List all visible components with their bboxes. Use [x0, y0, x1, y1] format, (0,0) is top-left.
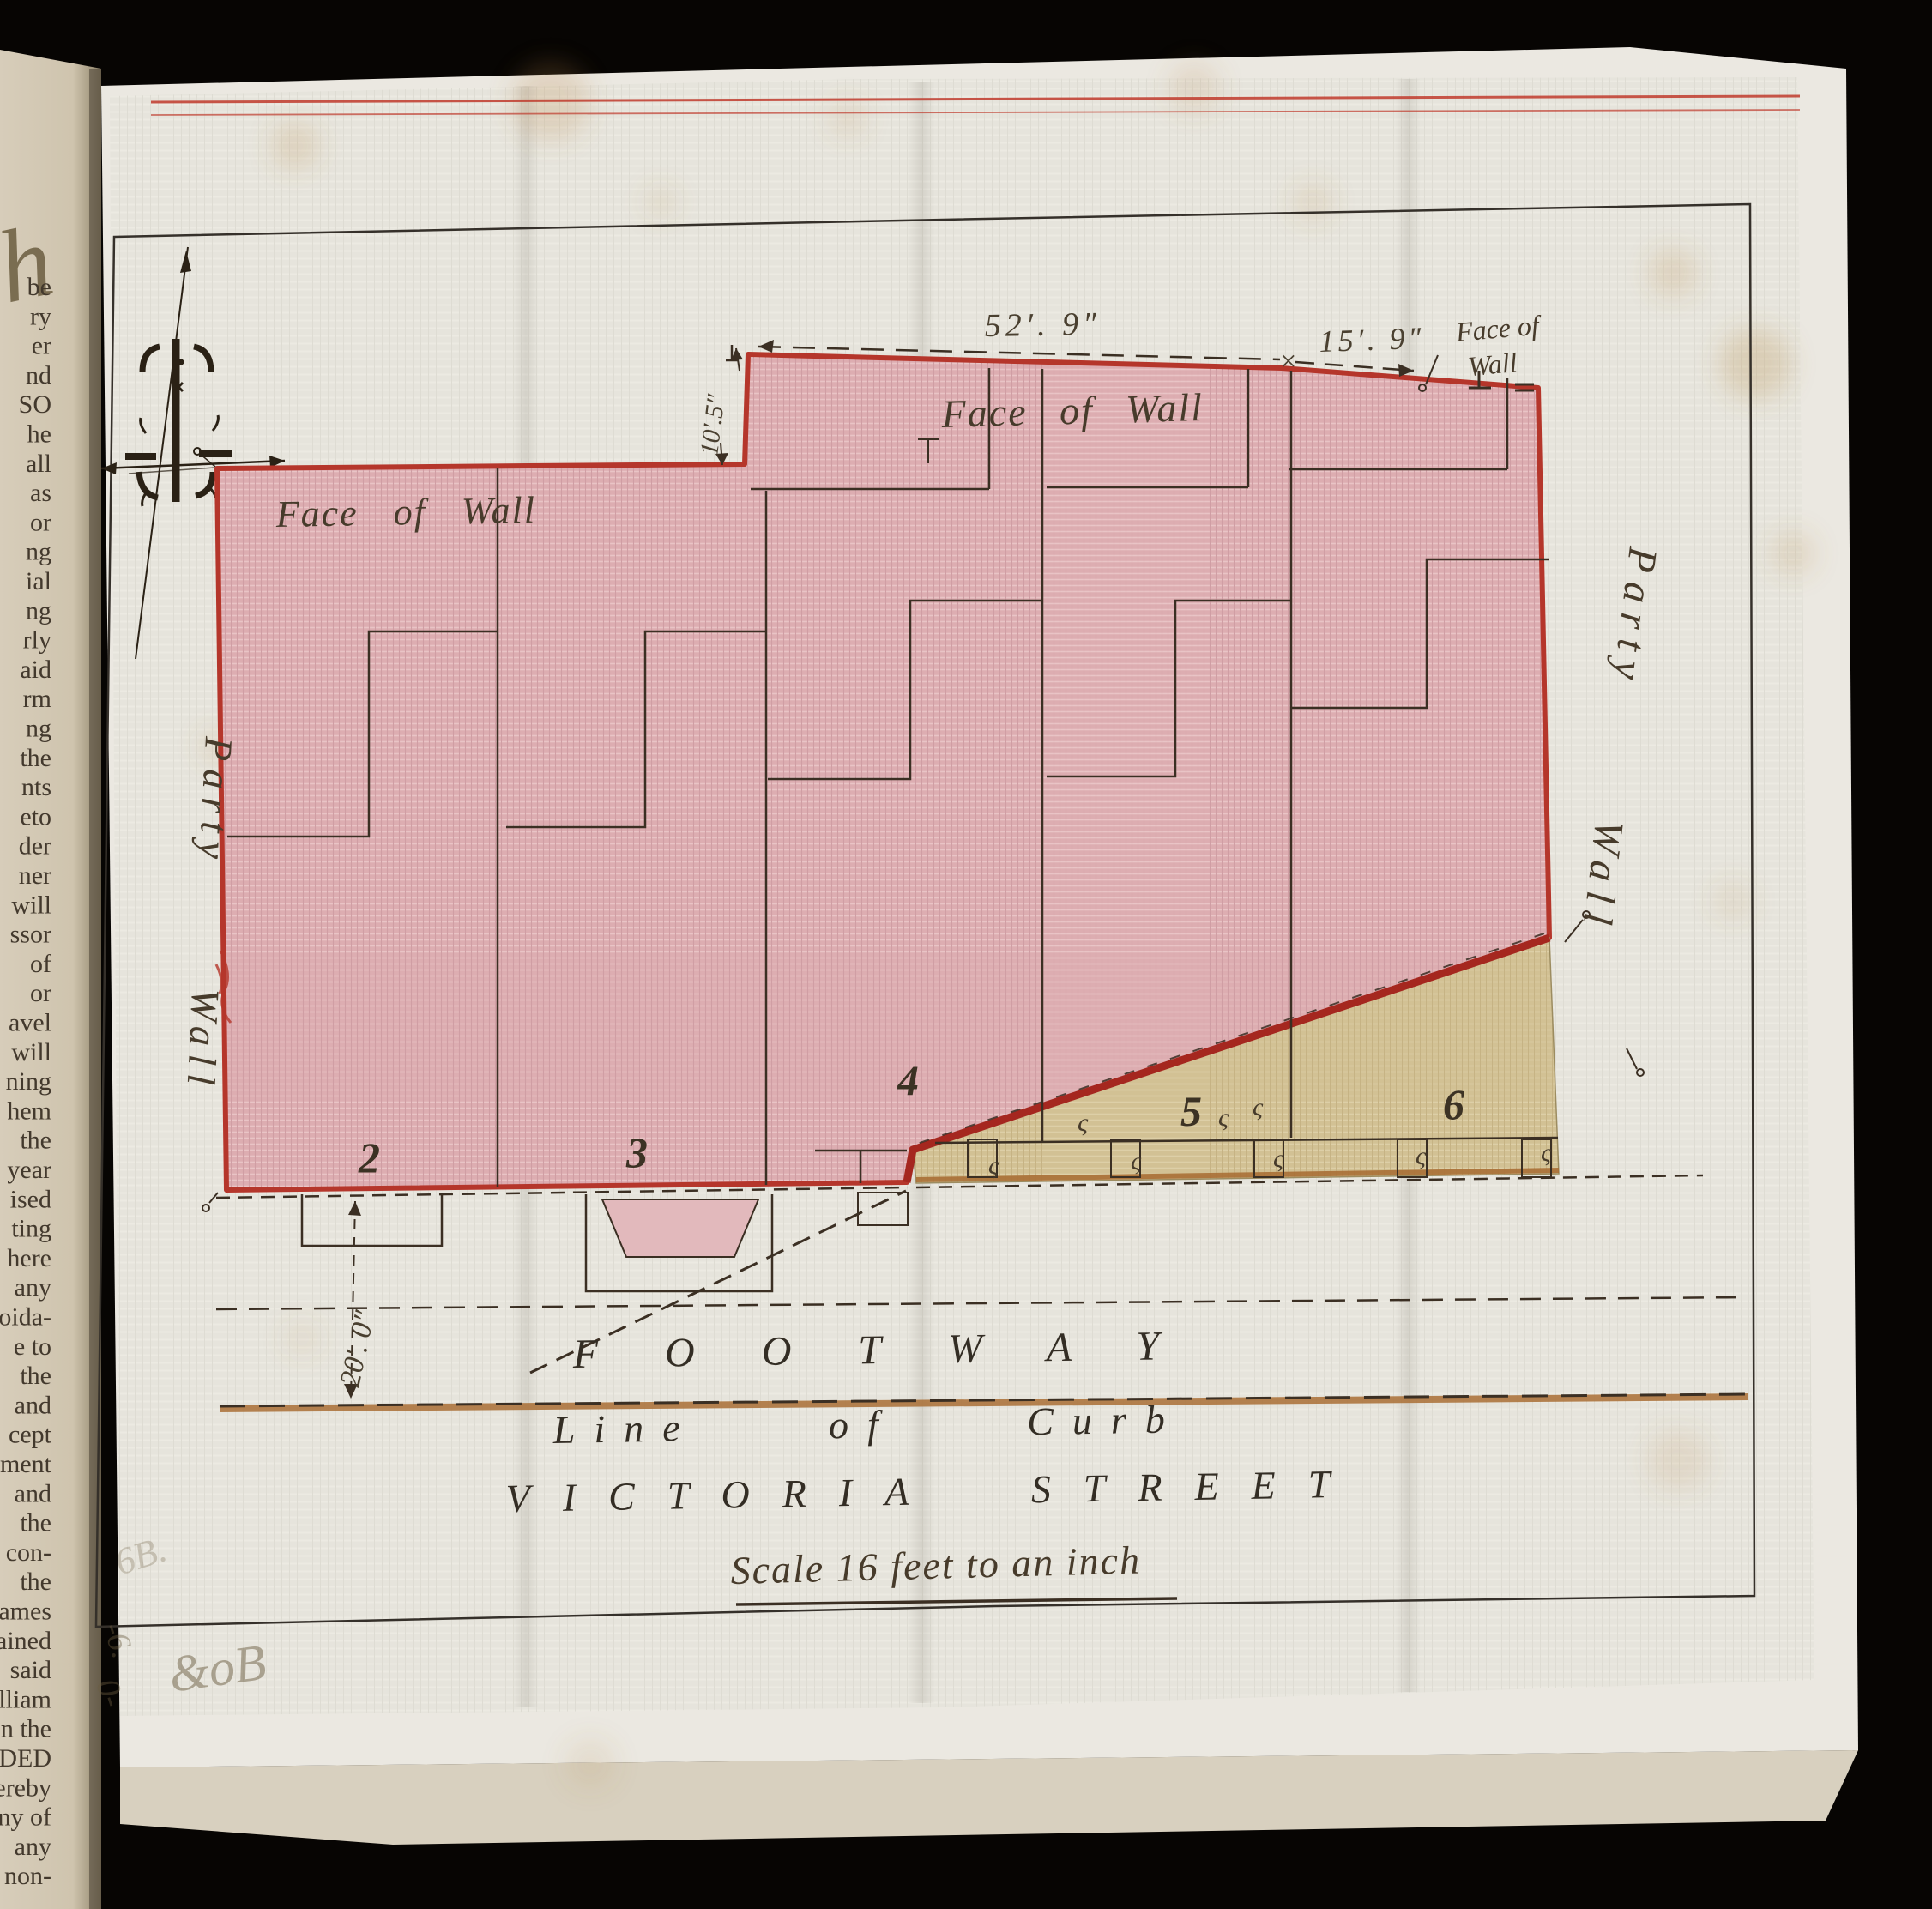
paper-stain [271, 122, 319, 170]
book-text-fragment: der [19, 832, 51, 861]
book-text-fragment: lliam [0, 1685, 51, 1713]
book-text-fragment: ning [6, 1067, 51, 1096]
section-mark: ς [1253, 1093, 1264, 1121]
book-text-fragment: hem [7, 1096, 51, 1125]
book-text-fragment: con- [6, 1538, 51, 1567]
book-text-fragment: ained [0, 1627, 51, 1655]
book-text-fragment: rly [23, 626, 51, 655]
paper-stain [565, 1738, 616, 1790]
book-text-fragment: the [20, 1127, 51, 1155]
book-text-fragment: here [7, 1244, 51, 1272]
book-text-fragment: the [20, 1509, 51, 1537]
book-text-fragment: will [11, 891, 51, 919]
plot-number-5: 5 [1180, 1087, 1202, 1135]
paper-stain [643, 185, 678, 220]
section-mark: ς [1131, 1147, 1142, 1175]
paper-stain [1647, 1429, 1709, 1491]
book-text-fragment: or [30, 979, 51, 1007]
section-mark: ς [1541, 1139, 1552, 1167]
paper-stain [1168, 62, 1220, 113]
plot-number-3: 3 [625, 1128, 648, 1176]
dim-frontage-right: 15′. 9″ [1319, 321, 1425, 359]
book-text-fragment: year [7, 1156, 51, 1184]
paper-stain [1712, 880, 1754, 921]
book-text-fragment: non- [4, 1862, 51, 1890]
book-text-fragment: ial [26, 567, 51, 595]
section-mark: ς [1416, 1142, 1427, 1170]
section-mark: ς [1218, 1103, 1229, 1132]
book-text-fragment: nts [21, 773, 51, 801]
section-mark: ς [1273, 1145, 1284, 1173]
scanned-book-opening: h beryerndSOheallasorngialngrlyaidrmngth… [0, 0, 1932, 1909]
book-text-fragment: rm [23, 685, 51, 713]
book-text-fragment: e to [14, 1332, 51, 1361]
book-text-fragment: ny of [0, 1803, 51, 1832]
book-text-fragment: and [15, 1479, 51, 1507]
book-text-fragment: ng [26, 596, 51, 625]
book-text-fragment: DED [0, 1744, 51, 1773]
face-of-wall-left-label: Face of Wall [275, 489, 536, 535]
book-text-fragment: the [20, 1362, 51, 1390]
face-of-wall-right-label-2: Wall [1466, 347, 1518, 382]
book-text-fragment: any [15, 1273, 51, 1302]
book-text-fragment: ner [19, 861, 51, 890]
book-text-fragment: nd [26, 361, 51, 390]
paper-stain [283, 1320, 321, 1357]
paper-stain [1719, 328, 1791, 400]
book-text-fragment: ereby [0, 1773, 51, 1802]
book-text-fragment: ting [11, 1215, 51, 1243]
book-text-fragment: any [15, 1833, 51, 1861]
book-text-fragment: all [26, 450, 51, 478]
book-text-fragment: or [30, 508, 51, 536]
book-text-fragment: and [15, 1391, 51, 1419]
book-text-fragment: he [27, 420, 51, 449]
book-text-fragment: of [30, 950, 51, 978]
book-text-fragment: n the [1, 1715, 51, 1743]
book-text-fragment: will [11, 1038, 51, 1066]
book-text-fragment: ry [30, 302, 51, 330]
book-text-fragment: as [30, 479, 51, 507]
book-text-fragment: avel [9, 1009, 51, 1037]
book-text-fragment: ng [26, 538, 51, 566]
paper-stain [1649, 249, 1697, 297]
paper-stain [1292, 182, 1333, 223]
book-text-fragment: SO [19, 390, 51, 419]
paper-stain [1771, 531, 1815, 576]
section-mark: ς [988, 1151, 999, 1180]
book-text-fragment: ames [0, 1598, 51, 1626]
left-book-page: h beryerndSOheallasorngialngrlyaidrmngth… [0, 50, 101, 1909]
footway-label: FOOTWAY [571, 1322, 1226, 1377]
book-text-fragment: eto [20, 802, 51, 831]
section-mark: ς [1078, 1109, 1089, 1137]
book-text-fragment: er [32, 332, 51, 360]
book-text-fragment: the [20, 1568, 51, 1596]
book-text-fragment: cept [9, 1421, 52, 1449]
book-text-fragment: ng [26, 715, 51, 743]
book-text-fragment: oida- [0, 1303, 51, 1332]
book-text-fragment: the [20, 744, 51, 772]
book-text-fragment: ised [10, 1185, 51, 1213]
dim-cross-mark: × [1278, 346, 1298, 378]
book-text-fragment: ssor [10, 921, 51, 949]
plot-number-2: 2 [358, 1133, 380, 1181]
plot-number-4: 4 [897, 1056, 919, 1104]
dim-frontage-main: 52′. 9″ [984, 306, 1101, 344]
plan-sheet: ςςςςςςςς [88, 62, 1815, 1790]
plot-number-6: 6 [1443, 1080, 1464, 1128]
book-text-fragment: said [10, 1656, 51, 1684]
book-text-fragment: aid [20, 655, 51, 684]
paper-stain [829, 100, 866, 137]
book-text-fragment: be [27, 273, 51, 301]
book-text-fragment: ment [0, 1450, 52, 1478]
face-of-wall-top-label: Face of Wall [940, 385, 1204, 436]
